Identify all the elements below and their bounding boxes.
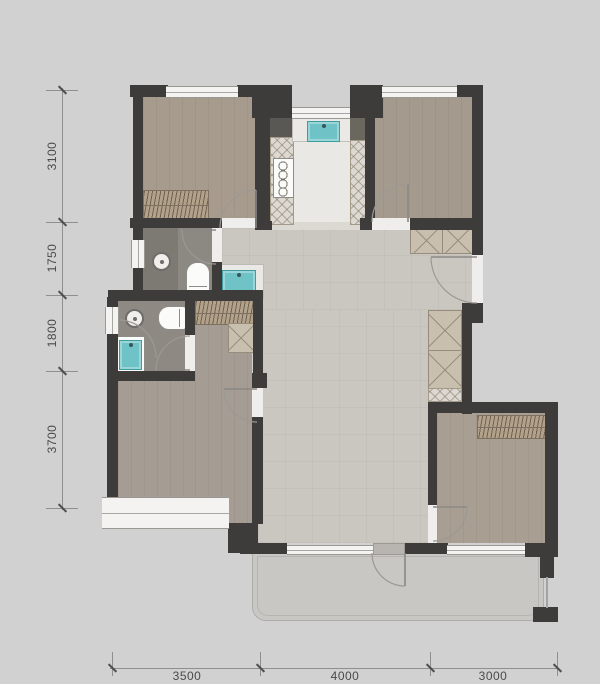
toilet-bottom-bathroom [158,306,187,330]
cabinet-cell [429,311,461,350]
wall-segment [533,607,558,622]
door-swing-master-bedroom [221,388,258,424]
floor-plan-canvas: 3100 1750 1800 3700 3500 4000 3000 [0,0,600,684]
dimension-extension [557,652,558,676]
door-swing-topright-bedroom [370,184,410,224]
wall-segment [252,417,263,524]
dimension-label: 3500 [157,669,217,683]
door-swing-balcony [372,552,407,587]
window-topleft-bedroom [166,86,238,98]
wall-segment [237,85,292,97]
wall-segment [252,373,267,388]
wall-segment [185,297,195,335]
dimension-extension [260,652,261,676]
wall-segment [462,303,483,323]
wall-segment [253,297,263,375]
kitchen-counter-dark-block [270,118,293,137]
bay-window-master-bedroom [102,497,229,529]
door-swing-top-bathroom [180,228,218,266]
wardrobe-topleft-bedroom [143,190,209,220]
door-swing-bottom-bathroom [154,334,192,372]
toilet-tank-line [179,309,180,327]
wall-segment [540,553,554,578]
hallway-storage-cabinet [428,310,462,390]
kitchen-stove [273,158,294,198]
hallway-storage-small [428,388,462,402]
dimension-extension [112,652,113,676]
dimension-label: 3000 [463,669,523,683]
dimension-label: 4000 [315,669,375,683]
window-living-room [287,545,373,555]
shoe-cabinet [410,227,474,254]
window-bottom-bathroom [105,307,119,334]
window-bottomright-bedroom [447,545,525,555]
cabinet-cell [411,228,442,253]
dimension-label: 3100 [45,126,59,186]
kitchen-sink [307,121,340,142]
master-bedroom-cabinet [228,323,254,353]
door-swing-bottomright-bedroom [432,506,468,542]
cabinet-cell [229,324,253,352]
window-kitchen [292,107,350,119]
cabinet-cell [442,228,474,253]
dimension-label: 1750 [45,228,59,288]
wall-segment [545,402,558,553]
wall-segment [108,371,195,381]
wall-segment [212,262,222,297]
window-top-bathroom [131,240,145,268]
dimension-line-left [62,88,63,510]
wall-segment [130,218,223,228]
dimension-label: 1800 [45,303,59,363]
door-swing-topleft-bedroom [219,188,259,230]
balcony-railing-right [546,577,548,608]
wall-segment [240,543,287,554]
kitchen-tall-unit-shadow [350,118,365,140]
wall-segment [428,402,437,505]
wall-segment [410,218,482,230]
wardrobe-master-bedroom [195,300,255,325]
dimension-extension [430,652,431,676]
entry-door-swing [430,256,478,304]
toilet-tank-line [189,286,207,287]
pedestal-sink-top-bathroom [152,252,171,271]
shower-partition-arc [116,318,158,360]
wardrobe-bottomright-bedroom [477,415,550,439]
cabinet-cell [429,350,461,390]
dimension-label: 3700 [45,409,59,469]
window-topright-bedroom [382,86,457,98]
wall-segment [428,402,558,413]
wall-segment [350,85,383,97]
wall-segment [462,323,472,414]
